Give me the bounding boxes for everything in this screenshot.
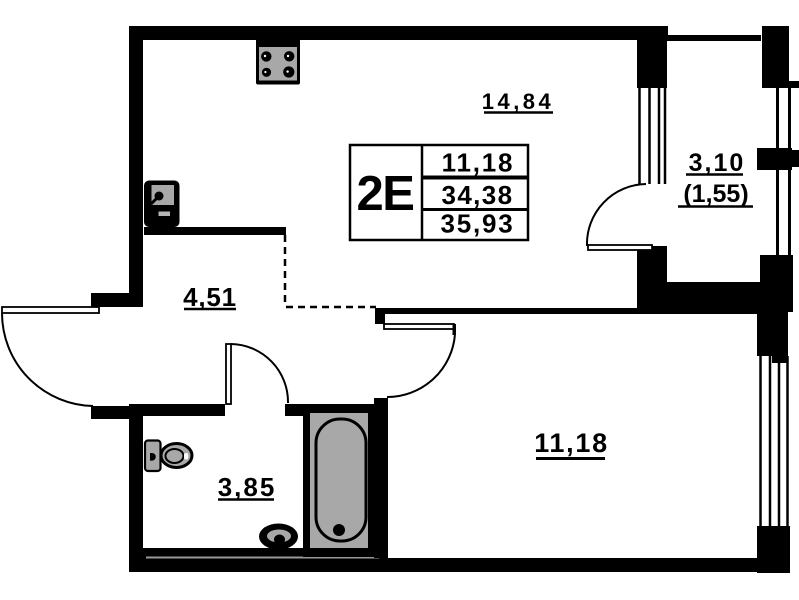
svg-text:35,93: 35,93	[440, 209, 514, 239]
svg-text:4,51: 4,51	[183, 282, 237, 312]
svg-text:2E: 2E	[357, 167, 414, 221]
svg-text:11,18: 11,18	[534, 428, 609, 458]
svg-text:3,10: 3,10	[689, 149, 746, 177]
svg-text:(1,55): (1,55)	[683, 180, 748, 208]
svg-text:11,18: 11,18	[442, 148, 515, 178]
svg-text:3,85: 3,85	[218, 472, 277, 502]
svg-text:14,84: 14,84	[482, 89, 555, 114]
svg-text:34,38: 34,38	[441, 180, 513, 210]
